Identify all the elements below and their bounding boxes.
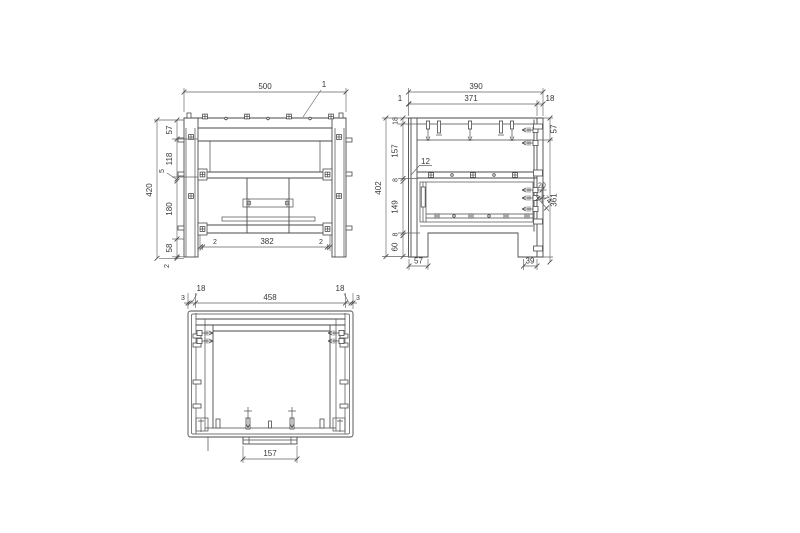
dim-front-57: 57 <box>165 125 174 134</box>
dim-side-overall-height: 402 <box>374 181 383 195</box>
dim-top-18-right: 18 <box>336 284 345 293</box>
dim-front-382: 382 <box>260 237 274 246</box>
side-view-geometry <box>409 118 544 257</box>
front-view-dimensions: 500 1 57 118 5 180 58 2 420 2 382 2 <box>145 80 348 268</box>
dim-front-58: 58 <box>165 243 174 252</box>
side-view: 390 371 18 1 18 157 8 149 8 60 402 57 36… <box>374 82 559 270</box>
dim-front-bottom-2-right: 2 <box>319 239 323 246</box>
dim-side-inner-width: 371 <box>464 94 478 103</box>
dim-front-bottom-2-left: 2 <box>213 239 217 246</box>
cad-drawing: 500 1 57 118 5 180 58 2 420 2 382 2 <box>0 0 800 533</box>
top-view: 3 18 458 18 3 157 <box>181 284 360 463</box>
leader-label-part-1: 1 <box>322 80 327 89</box>
dim-top-18-left: 18 <box>197 284 206 293</box>
drawing-page: 500 1 57 118 5 180 58 2 420 2 382 2 <box>0 0 800 533</box>
dim-front-180: 180 <box>165 202 174 216</box>
dim-top-bracket-157: 157 <box>263 449 277 458</box>
dim-side-front-edge-1: 1 <box>398 94 403 103</box>
top-view-geometry <box>188 311 353 451</box>
dim-side-panel-18: 18 <box>546 94 555 103</box>
dim-top-3-right: 3 <box>356 295 360 302</box>
dim-front-2-bottom: 2 <box>164 264 171 268</box>
dim-side-8-upper: 8 <box>393 178 400 182</box>
side-view-dimensions: 390 371 18 1 18 157 8 149 8 60 402 57 36… <box>374 82 559 270</box>
dim-side-right-57: 57 <box>550 124 559 133</box>
front-view-geometry <box>178 113 352 257</box>
dim-side-157: 157 <box>391 144 400 158</box>
dim-side-20: 20 <box>538 183 546 190</box>
dim-top-3-left: 3 <box>181 295 185 302</box>
dim-side-60: 60 <box>391 242 400 251</box>
dim-front-5: 5 <box>159 169 166 173</box>
dim-side-18-top: 18 <box>393 117 400 125</box>
dim-side-overall-width: 390 <box>469 82 483 91</box>
dim-front-118: 118 <box>165 152 174 165</box>
leader-label-part-12: 12 <box>421 157 430 166</box>
dim-front-overall-width: 500 <box>258 82 272 91</box>
dim-side-foot-57: 57 <box>414 257 423 266</box>
dim-side-149: 149 <box>391 200 400 214</box>
dim-top-458: 458 <box>263 293 277 302</box>
dim-side-8-lower: 8 <box>393 232 400 236</box>
dim-side-foot-39: 39 <box>526 257 535 266</box>
front-view: 500 1 57 118 5 180 58 2 420 2 382 2 <box>145 80 352 268</box>
dim-front-overall-height: 420 <box>145 183 154 197</box>
